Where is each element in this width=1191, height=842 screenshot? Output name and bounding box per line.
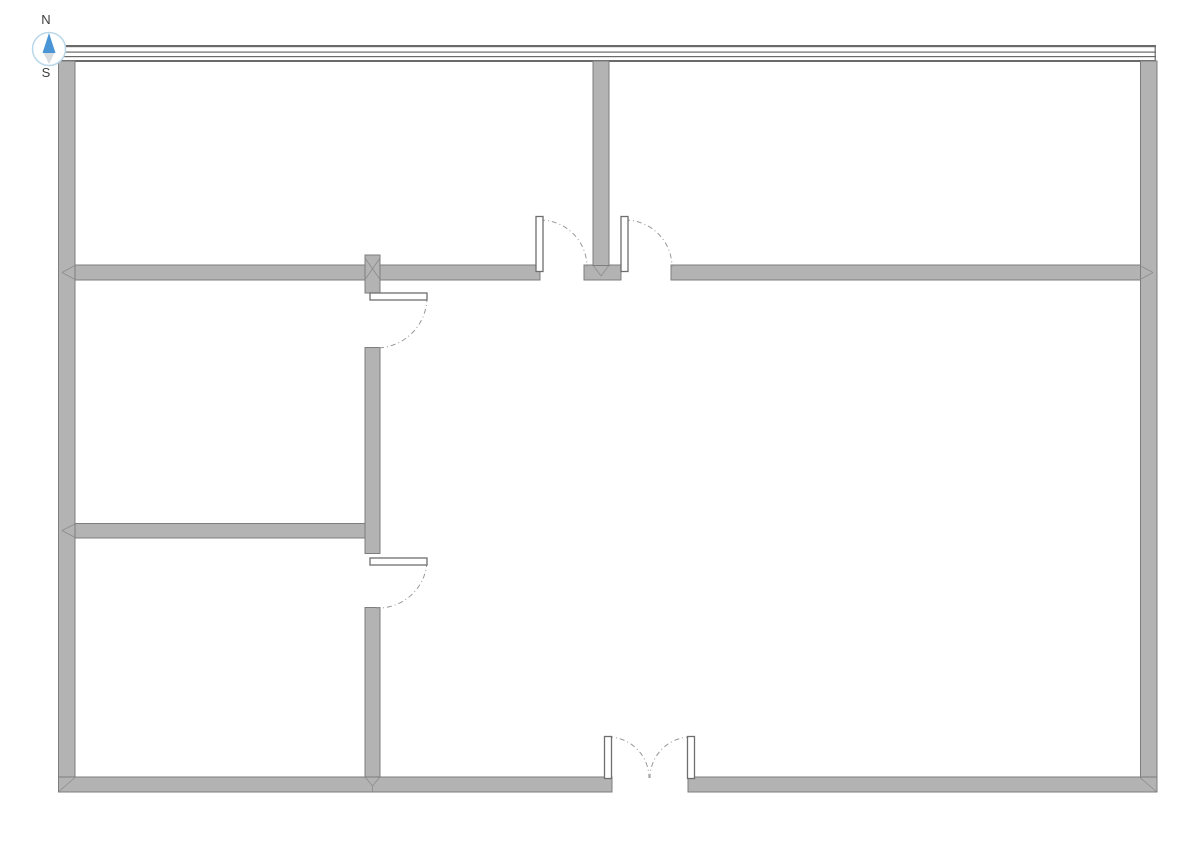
doors-layer[interactable] (370, 217, 695, 779)
middle-wall-right-segment[interactable] (671, 265, 1141, 280)
north-wall-line[interactable] (59, 45, 1157, 47)
entry-double-door-right-swing-arc (650, 737, 691, 778)
room-door-lower-leaf[interactable] (370, 558, 427, 565)
room-door-upper-leaf[interactable] (370, 293, 427, 300)
entry-double-door-right[interactable] (650, 737, 695, 779)
hall-door-left-leaf[interactable] (536, 217, 543, 272)
entry-double-door-left[interactable] (605, 737, 650, 779)
north-wall-line[interactable] (59, 52, 1157, 53)
lower-horizontal-wall[interactable] (75, 524, 365, 539)
interior-vertical-wall-lower[interactable] (365, 608, 380, 778)
middle-wall-left-segment[interactable] (75, 265, 540, 280)
left-exterior-wall[interactable] (59, 61, 76, 792)
entry-double-door-right-leaf[interactable] (688, 737, 695, 779)
north-exterior-layered-wall[interactable] (59, 45, 1157, 62)
floor-plan-canvas[interactable]: N S (0, 0, 1191, 842)
compass-north-label: N (41, 12, 50, 27)
room-door-lower-swing-arc (376, 562, 427, 608)
floor-plan-svg[interactable]: N S (0, 0, 1191, 842)
top-center-partition-wall[interactable] (593, 61, 609, 266)
right-exterior-wall[interactable] (1141, 61, 1158, 792)
hall-door-right-leaf[interactable] (621, 217, 628, 272)
south-wall-right-segment[interactable] (688, 777, 1157, 792)
middle-wall-center-stub[interactable] (584, 265, 621, 280)
compass-south-label: S (42, 65, 51, 80)
hall-door-left-swing-arc (540, 220, 587, 267)
compass-needle-icon (33, 33, 66, 66)
south-wall-left-segment[interactable] (59, 777, 613, 792)
walls-layer[interactable] (59, 61, 1158, 792)
room-door-upper-swing-arc (376, 297, 427, 348)
entry-double-door-left-leaf[interactable] (605, 737, 612, 779)
room-door-upper[interactable] (370, 293, 427, 348)
room-door-lower[interactable] (370, 558, 427, 608)
hall-door-right-swing-arc (625, 220, 672, 267)
hall-door-left[interactable] (536, 217, 587, 272)
north-wall-line[interactable] (59, 56, 1157, 57)
interior-vertical-wall-middle[interactable] (365, 348, 380, 554)
hall-door-right[interactable] (621, 217, 672, 272)
entry-double-door-left-swing-arc (608, 737, 649, 778)
